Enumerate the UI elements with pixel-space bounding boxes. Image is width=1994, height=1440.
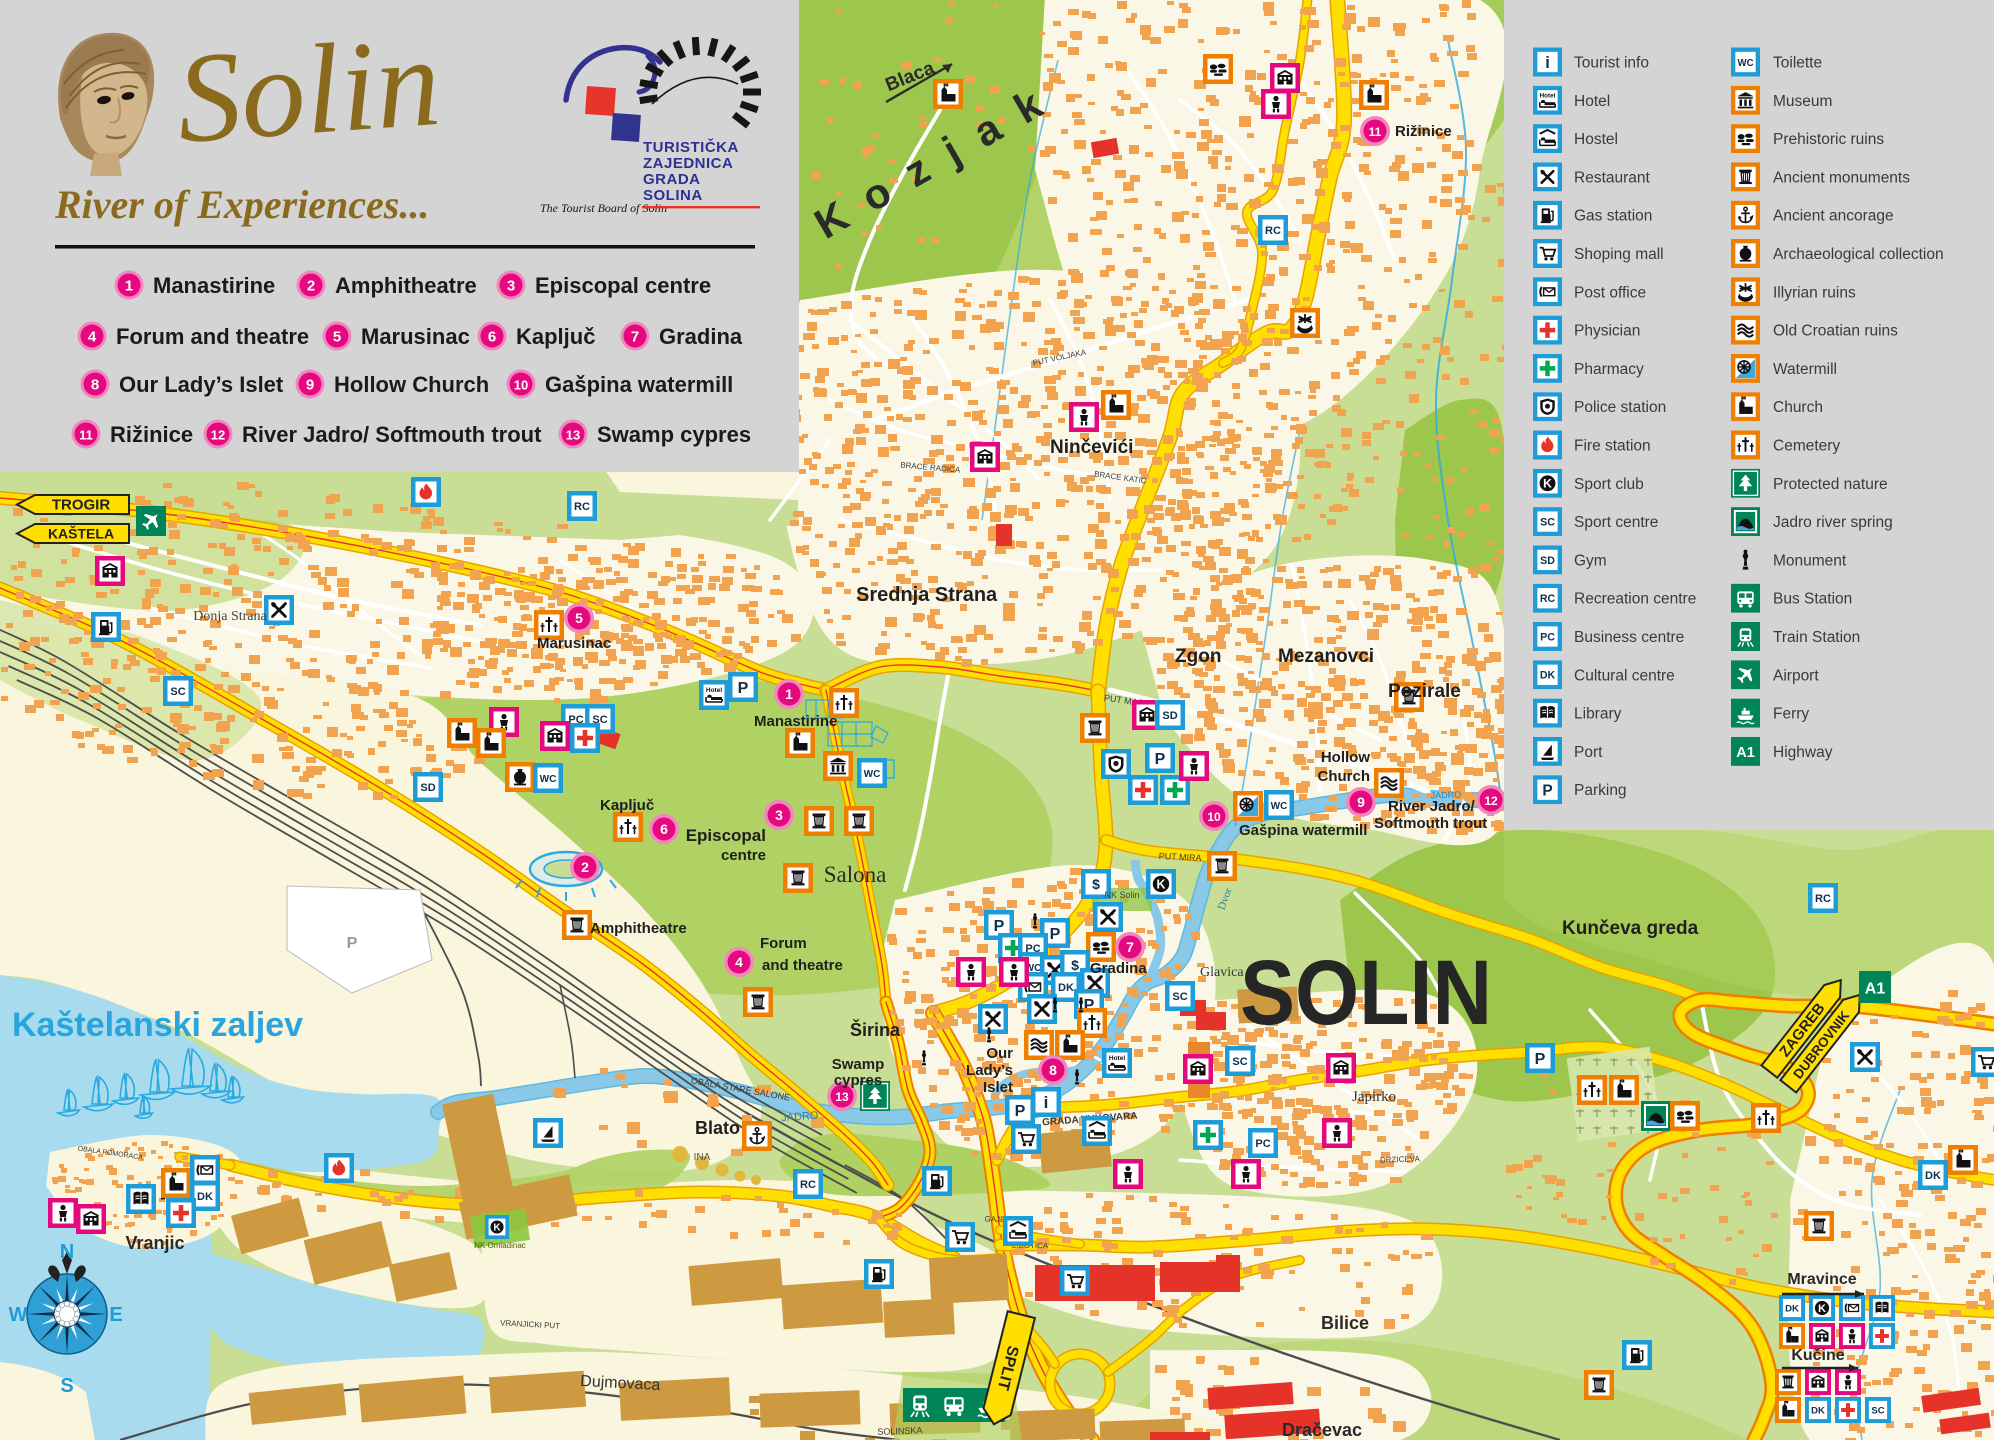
svg-text:7: 7 xyxy=(631,329,639,346)
svg-text:Shoping mall: Shoping mall xyxy=(1574,246,1664,263)
svg-text:E: E xyxy=(109,1304,122,1326)
svg-text:Širina: Širina xyxy=(850,1019,901,1040)
svg-text:1: 1 xyxy=(785,686,793,702)
svg-text:Episcopal centre: Episcopal centre xyxy=(535,273,711,298)
svg-text:Mravince: Mravince xyxy=(1787,1271,1856,1288)
svg-text:Illyrian ruins: Illyrian ruins xyxy=(1773,284,1856,301)
svg-text:2: 2 xyxy=(307,278,315,295)
svg-text:5: 5 xyxy=(575,610,583,626)
svg-text:Recreation centre: Recreation centre xyxy=(1574,591,1696,608)
svg-text:Solin: Solin xyxy=(172,10,444,170)
svg-text:S: S xyxy=(60,1375,73,1397)
svg-text:Parking: Parking xyxy=(1574,782,1627,799)
svg-text:Cultural centre: Cultural centre xyxy=(1574,667,1675,684)
svg-text:Marusinac: Marusinac xyxy=(537,635,611,652)
svg-text:Forum: Forum xyxy=(760,935,807,952)
svg-text:Ancient ancorage: Ancient ancorage xyxy=(1773,208,1894,225)
svg-text:TURISTIČKA: TURISTIČKA xyxy=(643,138,739,156)
svg-text:Kaštelanski zaljev: Kaštelanski zaljev xyxy=(12,1006,303,1044)
svg-text:Gas station: Gas station xyxy=(1574,208,1652,225)
svg-text:SOLIN: SOLIN xyxy=(1240,942,1492,1044)
svg-text:3: 3 xyxy=(775,807,783,823)
svg-text:Manastirine: Manastirine xyxy=(754,713,837,730)
svg-text:P: P xyxy=(347,935,358,952)
svg-text:Gašpina watermill: Gašpina watermill xyxy=(545,372,733,397)
svg-text:Train Station: Train Station xyxy=(1773,629,1860,646)
svg-text:N: N xyxy=(60,1241,74,1263)
svg-text:GRADA: GRADA xyxy=(643,171,701,188)
svg-text:Hostel: Hostel xyxy=(1574,131,1618,148)
svg-text:Toilette: Toilette xyxy=(1773,55,1822,72)
svg-text:Dračevac: Dračevac xyxy=(1282,1420,1362,1440)
svg-text:and theatre: and theatre xyxy=(762,957,843,974)
svg-text:Fire station: Fire station xyxy=(1574,438,1651,455)
svg-text:Ancient monuments: Ancient monuments xyxy=(1773,169,1910,186)
svg-text:Business centre: Business centre xyxy=(1574,629,1684,646)
svg-text:Hollow Church: Hollow Church xyxy=(334,372,489,397)
svg-text:3: 3 xyxy=(507,278,515,295)
svg-text:Physician: Physician xyxy=(1574,323,1640,340)
svg-text:INA: INA xyxy=(694,1152,711,1163)
svg-text:Episcopal: Episcopal xyxy=(686,826,766,845)
svg-text:Gradina: Gradina xyxy=(659,324,743,349)
svg-text:7: 7 xyxy=(1126,939,1134,955)
svg-text:Port: Port xyxy=(1574,744,1603,761)
svg-text:Sport centre: Sport centre xyxy=(1574,514,1658,531)
svg-text:Museum: Museum xyxy=(1773,93,1832,110)
svg-text:TROGIR: TROGIR xyxy=(52,497,110,514)
svg-text:SOLINSKA: SOLINSKA xyxy=(877,1425,922,1437)
svg-text:Ninčevići: Ninčevići xyxy=(1050,437,1133,458)
svg-text:9: 9 xyxy=(306,377,314,394)
svg-text:Mezanovci: Mezanovci xyxy=(1278,646,1374,667)
svg-text:11: 11 xyxy=(79,428,93,443)
svg-text:Bus Station: Bus Station xyxy=(1773,591,1852,608)
svg-text:Vranjic: Vranjic xyxy=(125,1233,184,1253)
svg-text:Pozirale: Pozirale xyxy=(1388,681,1461,702)
svg-text:Restaurant: Restaurant xyxy=(1574,169,1651,186)
svg-text:Church: Church xyxy=(1318,768,1371,785)
svg-text:Rižinice: Rižinice xyxy=(1395,123,1452,140)
svg-text:River Jadro/: River Jadro/ xyxy=(1388,798,1476,815)
svg-text:Sport club: Sport club xyxy=(1574,476,1644,493)
svg-text:8: 8 xyxy=(91,377,99,394)
svg-text:2: 2 xyxy=(581,859,589,875)
svg-text:Archaeological collection: Archaeological collection xyxy=(1773,246,1944,263)
svg-text:Manastirine: Manastirine xyxy=(153,273,275,298)
svg-text:centre: centre xyxy=(721,847,766,864)
svg-text:Salona: Salona xyxy=(824,862,887,887)
svg-text:Airport: Airport xyxy=(1773,667,1819,684)
svg-text:Hollow: Hollow xyxy=(1321,749,1370,766)
svg-text:4: 4 xyxy=(88,329,97,346)
svg-text:Gašpina watermill: Gašpina watermill xyxy=(1239,822,1367,839)
svg-text:Forum and theatre: Forum and theatre xyxy=(116,324,309,349)
svg-text:Blato: Blato xyxy=(695,1118,740,1138)
svg-text:Glavica: Glavica xyxy=(1200,965,1244,980)
svg-text:ZAJEDNICA: ZAJEDNICA xyxy=(643,155,733,172)
svg-text:4: 4 xyxy=(735,954,743,970)
svg-text:Police station: Police station xyxy=(1574,399,1666,416)
svg-text:River of Experiences...: River of Experiences... xyxy=(54,182,429,227)
svg-text:5: 5 xyxy=(333,329,341,346)
svg-text:W: W xyxy=(9,1304,28,1326)
svg-text:12: 12 xyxy=(1484,794,1498,808)
svg-text:Jadro river spring: Jadro river spring xyxy=(1773,514,1893,531)
svg-text:Amphitheatre: Amphitheatre xyxy=(335,273,477,298)
svg-text:Lady’s: Lady’s xyxy=(966,1062,1013,1079)
svg-text:Gym: Gym xyxy=(1574,552,1607,569)
svg-text:13: 13 xyxy=(566,428,580,443)
svg-text:Old Croatian ruins: Old Croatian ruins xyxy=(1773,323,1898,340)
svg-text:10: 10 xyxy=(514,378,528,393)
svg-text:Swamp: Swamp xyxy=(832,1056,885,1073)
svg-text:Donja Strana: Donja Strana xyxy=(193,609,267,624)
svg-text:Protected nature: Protected nature xyxy=(1773,476,1888,493)
svg-text:Islet: Islet xyxy=(983,1079,1013,1096)
svg-text:9: 9 xyxy=(1357,794,1365,810)
svg-text:Zgon: Zgon xyxy=(1175,646,1221,667)
svg-text:Prehistoric ruins: Prehistoric ruins xyxy=(1773,131,1884,148)
svg-text:6: 6 xyxy=(488,329,496,346)
svg-text:Bilice: Bilice xyxy=(1321,1313,1369,1333)
svg-text:Church: Church xyxy=(1773,399,1823,416)
svg-text:1: 1 xyxy=(125,278,133,295)
svg-text:NK Omladinac: NK Omladinac xyxy=(474,1241,526,1250)
svg-text:Swamp cypres: Swamp cypres xyxy=(597,422,751,447)
svg-text:Our: Our xyxy=(986,1045,1013,1062)
svg-text:Highway: Highway xyxy=(1773,744,1833,761)
svg-text:13: 13 xyxy=(835,1090,849,1104)
svg-text:Ferry: Ferry xyxy=(1773,706,1809,723)
svg-text:Our Lady’s Islet: Our Lady’s Islet xyxy=(119,372,284,397)
svg-text:Watermill: Watermill xyxy=(1773,361,1837,378)
svg-text:11: 11 xyxy=(1369,125,1382,139)
svg-text:10: 10 xyxy=(1207,810,1221,824)
svg-text:Library: Library xyxy=(1574,706,1622,723)
svg-text:Kučine: Kučine xyxy=(1791,1347,1844,1364)
svg-text:6: 6 xyxy=(660,821,668,837)
svg-text:Japirko: Japirko xyxy=(1352,1089,1396,1105)
svg-text:Kapljuč: Kapljuč xyxy=(516,324,595,349)
svg-text:Gradina: Gradina xyxy=(1090,960,1147,977)
svg-text:DRZICEVA: DRZICEVA xyxy=(1380,1154,1421,1164)
svg-text:8: 8 xyxy=(1049,1062,1057,1078)
svg-text:12: 12 xyxy=(211,428,225,443)
svg-text:River Jadro/ Softmouth trout: River Jadro/ Softmouth trout xyxy=(242,422,542,447)
svg-text:Pharmacy: Pharmacy xyxy=(1574,361,1644,378)
svg-text:Srednja Strana: Srednja Strana xyxy=(856,584,998,606)
svg-text:Hotel: Hotel xyxy=(1574,93,1610,110)
svg-text:Marusinac: Marusinac xyxy=(361,324,470,349)
svg-text:Post office: Post office xyxy=(1574,284,1646,301)
svg-text:KAŠTELA: KAŠTELA xyxy=(48,525,114,542)
svg-text:Amphitheatre: Amphitheatre xyxy=(590,920,687,937)
svg-text:NK Solin: NK Solin xyxy=(1104,890,1139,900)
svg-text:Softmouth trout: Softmouth trout xyxy=(1374,815,1487,832)
svg-text:Monument: Monument xyxy=(1773,552,1847,569)
svg-text:Kapljuč: Kapljuč xyxy=(600,797,654,814)
svg-text:cypres: cypres xyxy=(834,1072,882,1089)
svg-text:Tourist info: Tourist info xyxy=(1574,55,1649,72)
svg-text:Rižinice: Rižinice xyxy=(110,422,193,447)
svg-text:Cemetery: Cemetery xyxy=(1773,438,1840,455)
svg-text:Kunčeva greda: Kunčeva greda xyxy=(1562,918,1699,939)
